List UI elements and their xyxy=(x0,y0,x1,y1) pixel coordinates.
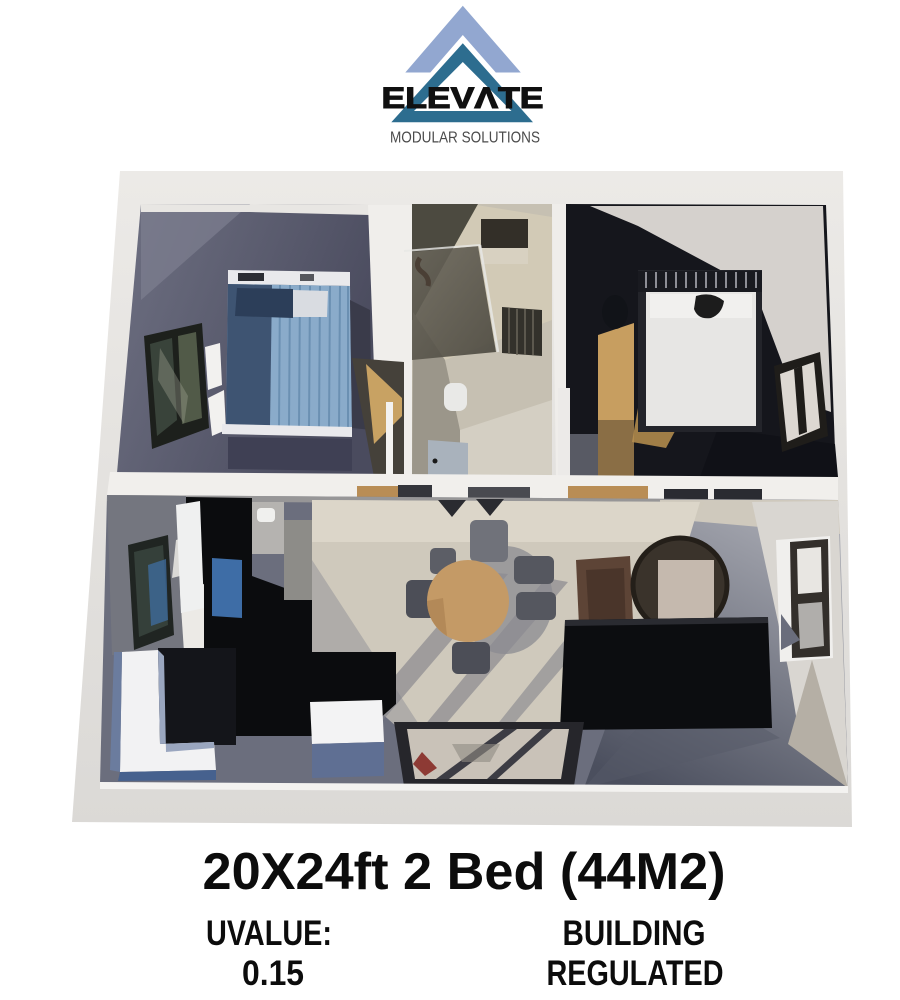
svg-text:BUILDING: BUILDING xyxy=(563,914,706,953)
svg-text:0.15: 0.15 xyxy=(242,954,304,993)
svg-text:UVALUE:: UVALUE: xyxy=(206,914,332,953)
svg-text:REGULATED: REGULATED xyxy=(547,954,724,993)
svg-text:ELEVΛTE: ELEVΛTE xyxy=(382,82,544,115)
svg-text:20X24ft 2 Bed (44M2): 20X24ft 2 Bed (44M2) xyxy=(203,843,726,901)
svg-text:MODULAR SOLUTIONS: MODULAR SOLUTIONS xyxy=(390,130,540,147)
